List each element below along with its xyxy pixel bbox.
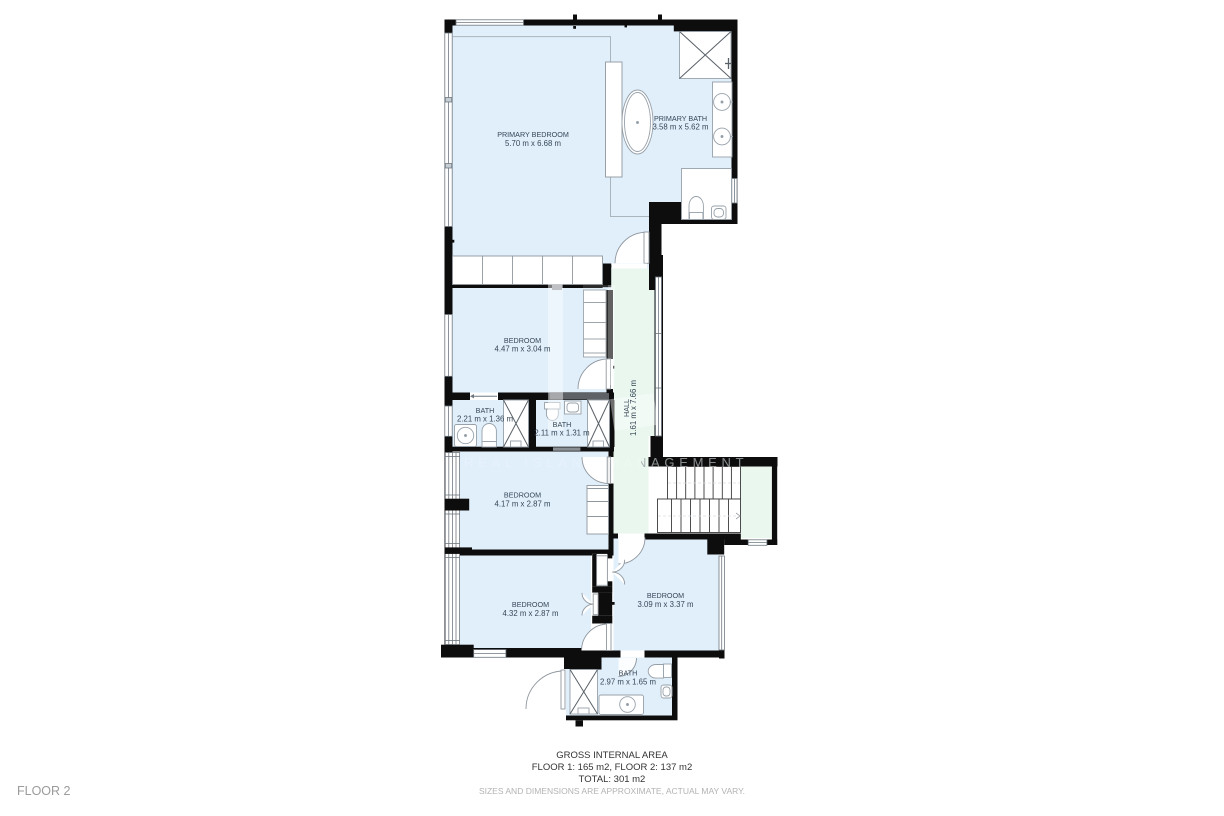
svg-text:PRIMARY BEDROOM: PRIMARY BEDROOM xyxy=(497,130,569,139)
svg-text:TOTAL: 301 m2: TOTAL: 301 m2 xyxy=(579,774,646,785)
svg-text:2.21 m x 1.36 m: 2.21 m x 1.36 m xyxy=(457,415,513,424)
svg-text:2.11 m x 1.31 m: 2.11 m x 1.31 m xyxy=(534,429,589,438)
svg-text:2.97 m x 1.65 m: 2.97 m x 1.65 m xyxy=(600,678,656,687)
svg-text:4.32 m x 2.87 m: 4.32 m x 2.87 m xyxy=(503,609,559,618)
svg-text:4.47 m x 3.04 m: 4.47 m x 3.04 m xyxy=(495,345,551,354)
svg-text:5.70 m x 6.68 m: 5.70 m x 6.68 m xyxy=(505,139,561,148)
svg-text:BEDROOM: BEDROOM xyxy=(647,591,684,600)
svg-text:3.58 m x 5.62 m: 3.58 m x 5.62 m xyxy=(653,123,709,132)
svg-text:3.09 m x 3.37 m: 3.09 m x 3.37 m xyxy=(638,600,694,609)
svg-text:BEDROOM: BEDROOM xyxy=(512,600,549,609)
svg-text:1.61 m x 7.66 m: 1.61 m x 7.66 m xyxy=(629,380,638,436)
svg-text:BEDROOM: BEDROOM xyxy=(504,491,541,500)
svg-text:4.17 m x 2.87 m: 4.17 m x 2.87 m xyxy=(495,500,551,509)
svg-text:SIZES AND DIMENSIONS ARE APPRO: SIZES AND DIMENSIONS ARE APPROXIMATE, AC… xyxy=(479,786,745,796)
svg-text:FLOOR 2: FLOOR 2 xyxy=(17,784,71,798)
svg-text:BATH: BATH xyxy=(619,669,638,678)
svg-text:GROSS INTERNAL AREA: GROSS INTERNAL AREA xyxy=(556,750,668,761)
svg-text:FLOOR 1: 165 m2, FLOOR 2: 137: FLOOR 1: 165 m2, FLOOR 2: 137 m2 xyxy=(532,762,693,773)
